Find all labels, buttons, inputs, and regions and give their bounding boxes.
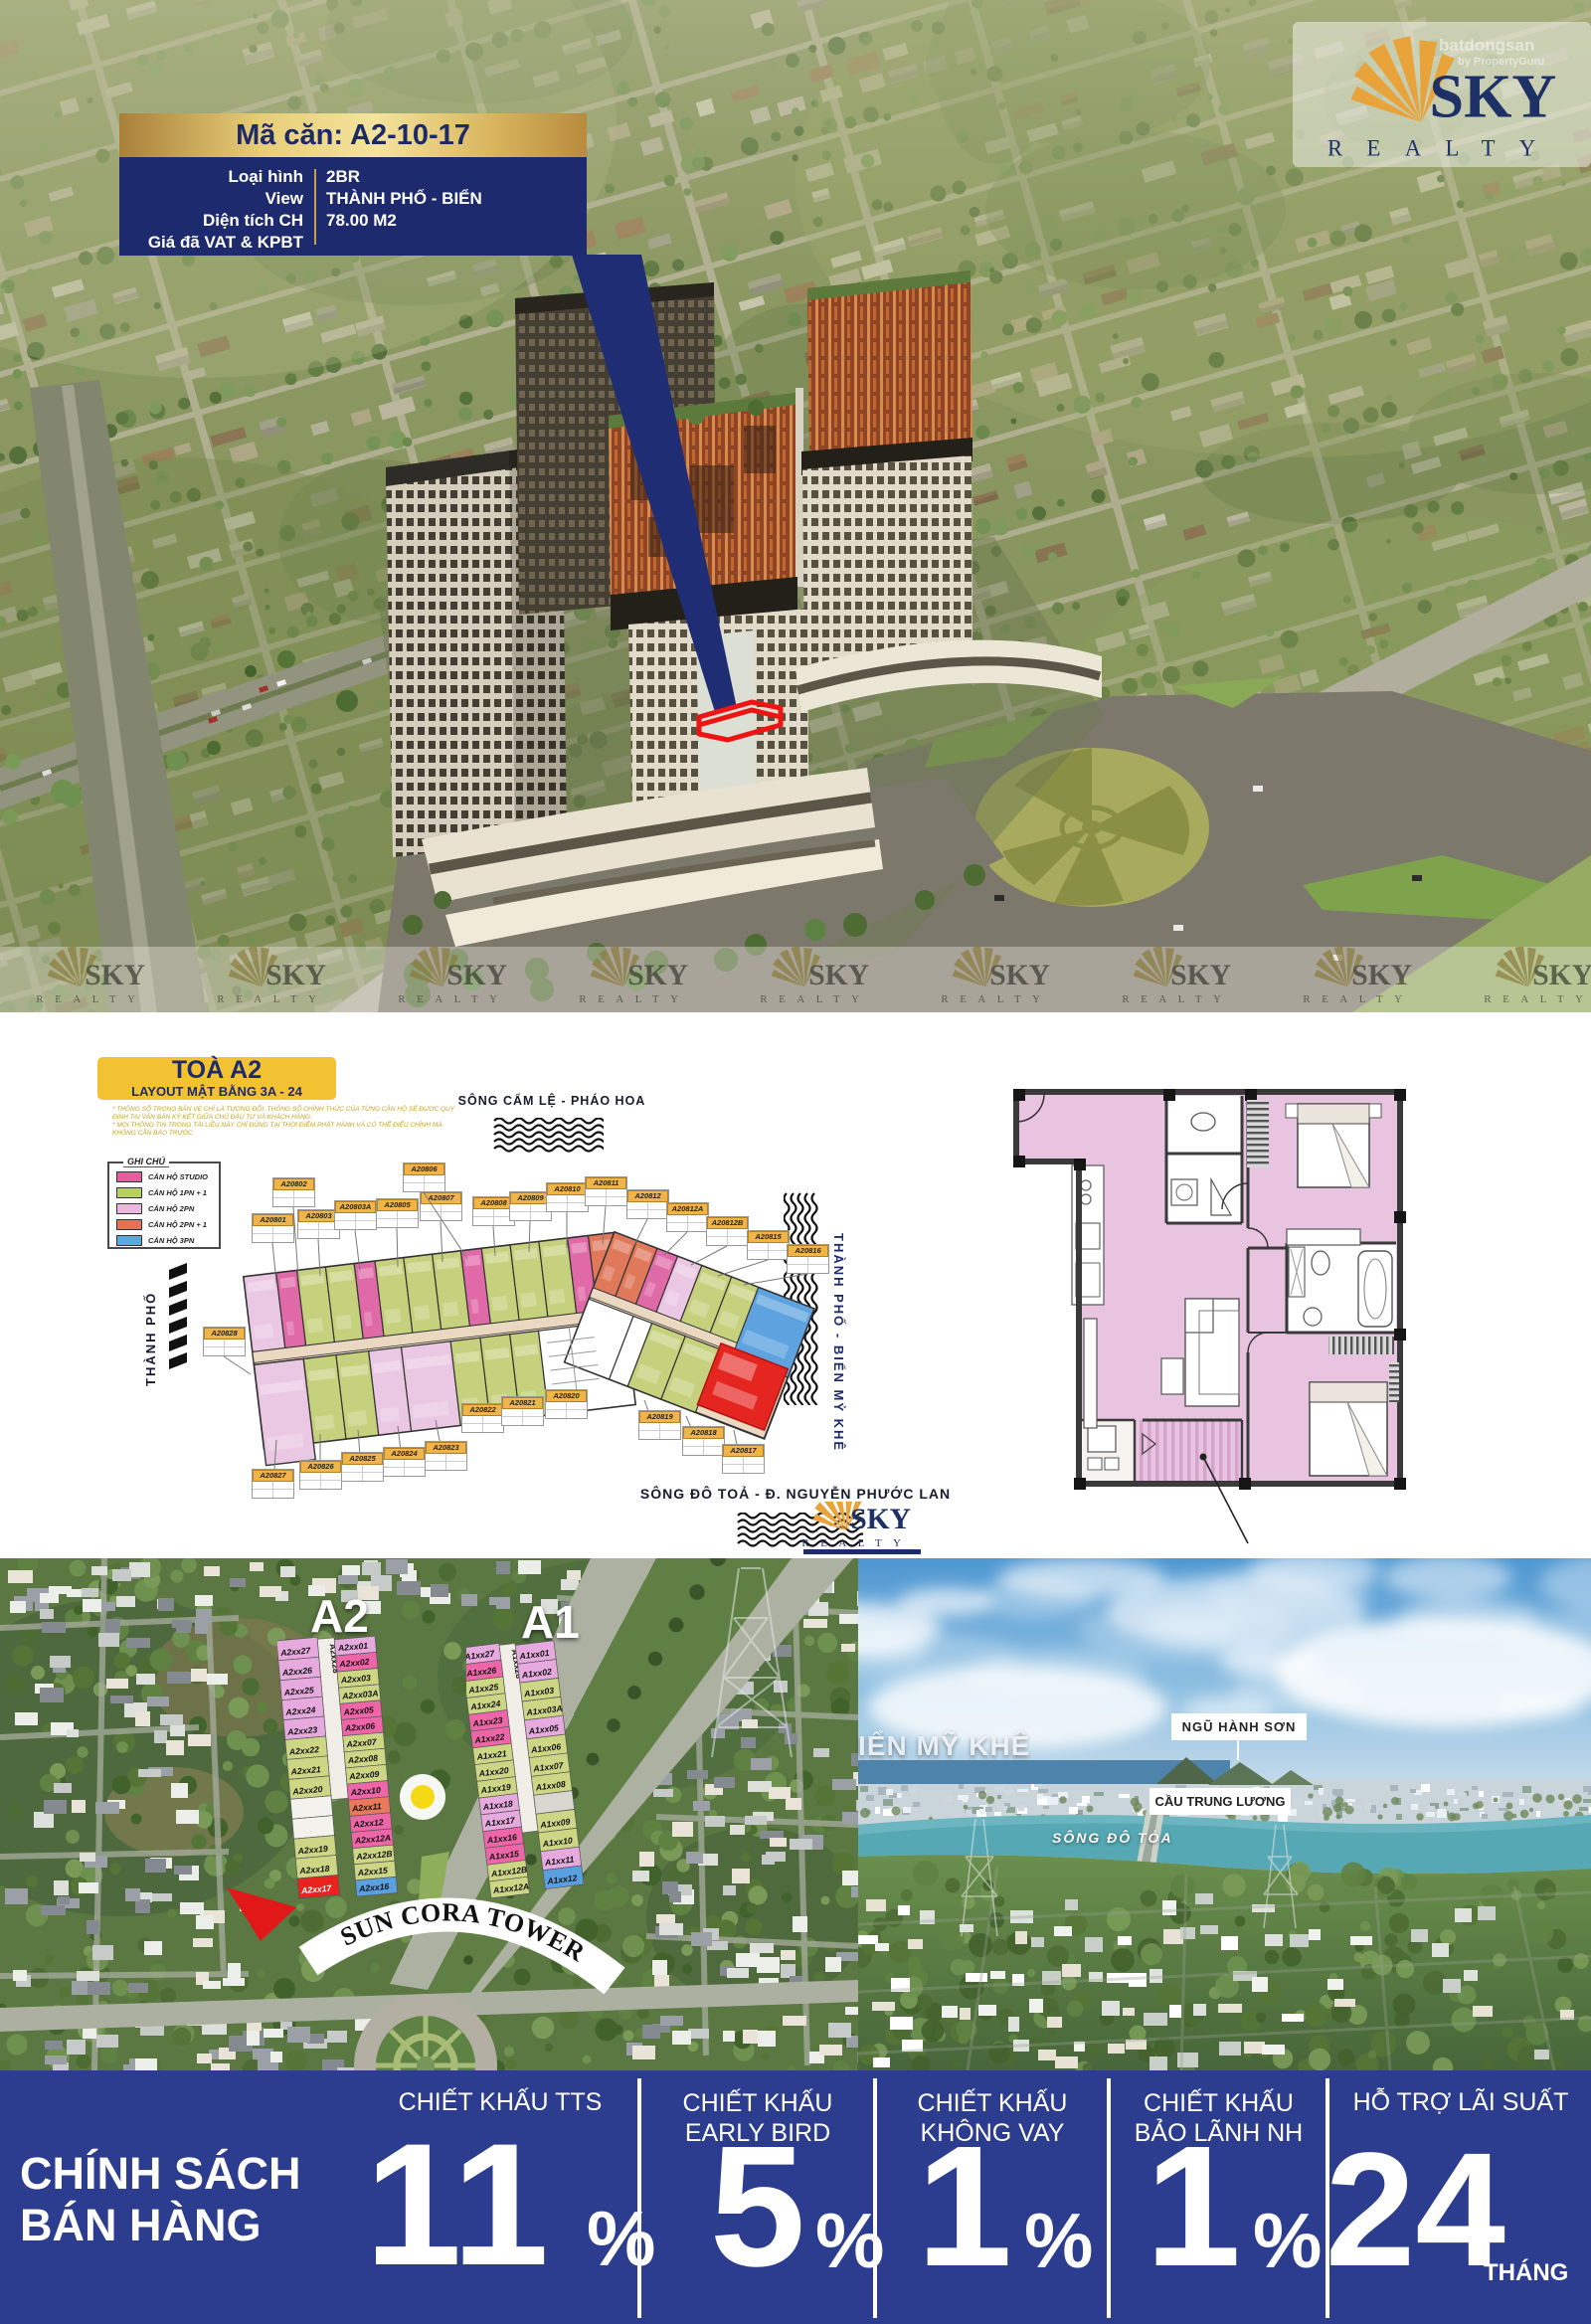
svg-text:REALTY: REALTY (760, 993, 870, 1005)
svg-text:SKY: SKY (1170, 960, 1231, 991)
svg-text:REALTY: REALTY (398, 993, 508, 1005)
svg-text:REALTY: REALTY (1303, 993, 1413, 1005)
svg-text:SKY: SKY (989, 960, 1050, 991)
svg-text:REALTY: REALTY (1122, 993, 1232, 1005)
svg-text:REALTY: REALTY (941, 993, 1051, 1005)
svg-text:SKY: SKY (1351, 960, 1412, 991)
svg-text:SKY: SKY (265, 960, 326, 991)
svg-text:REALTY: REALTY (36, 993, 146, 1005)
svg-text:SKY: SKY (85, 960, 145, 991)
svg-text:SKY: SKY (1532, 960, 1591, 991)
svg-text:SKY: SKY (1430, 64, 1557, 131)
svg-text:REALTY: REALTY (217, 993, 327, 1005)
svg-text:SKY: SKY (627, 960, 688, 991)
svg-text:SKY: SKY (446, 960, 507, 991)
svg-text:REALTY: REALTY (579, 993, 689, 1005)
svg-text:REALTY: REALTY (1484, 993, 1591, 1005)
svg-text:SKY: SKY (808, 960, 869, 991)
svg-text:REALTY: REALTY (1327, 135, 1560, 160)
